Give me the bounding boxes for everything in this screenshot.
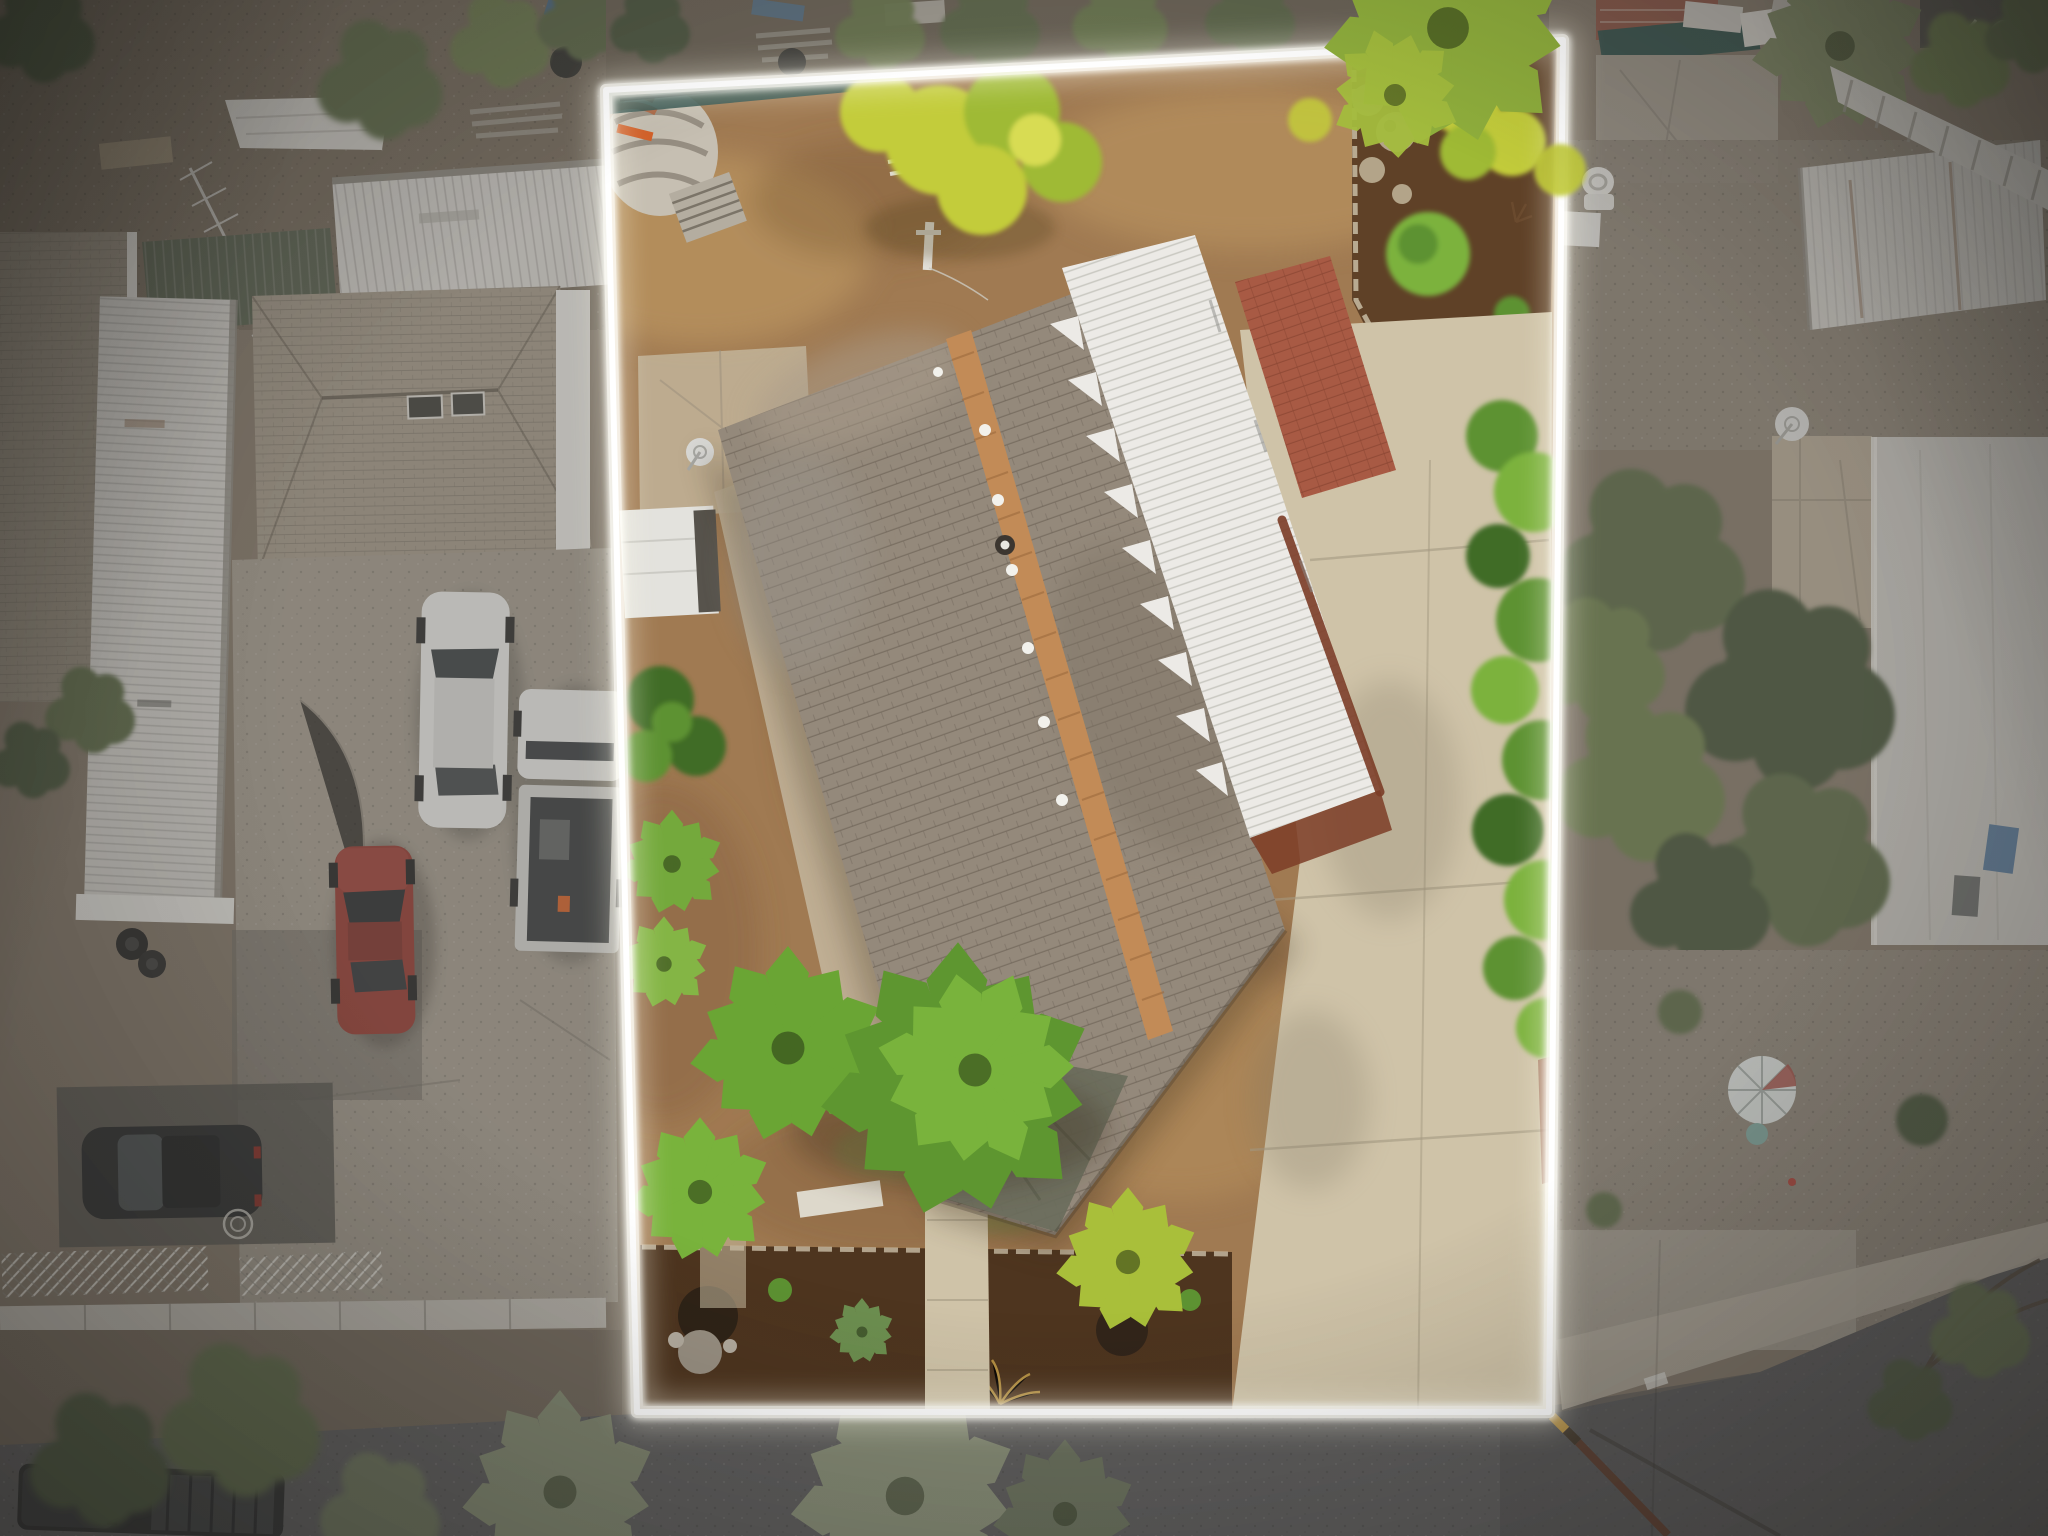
- boulder: [678, 1330, 722, 1374]
- aerial-photo: [0, 0, 2048, 1536]
- scene-svg: [0, 0, 2048, 1536]
- white-shed: [619, 505, 721, 618]
- seedling: [768, 1278, 792, 1302]
- yellow-bush: [1288, 98, 1332, 142]
- subject-lot: [530, 40, 1584, 1412]
- bush-over-line: [1534, 144, 1586, 196]
